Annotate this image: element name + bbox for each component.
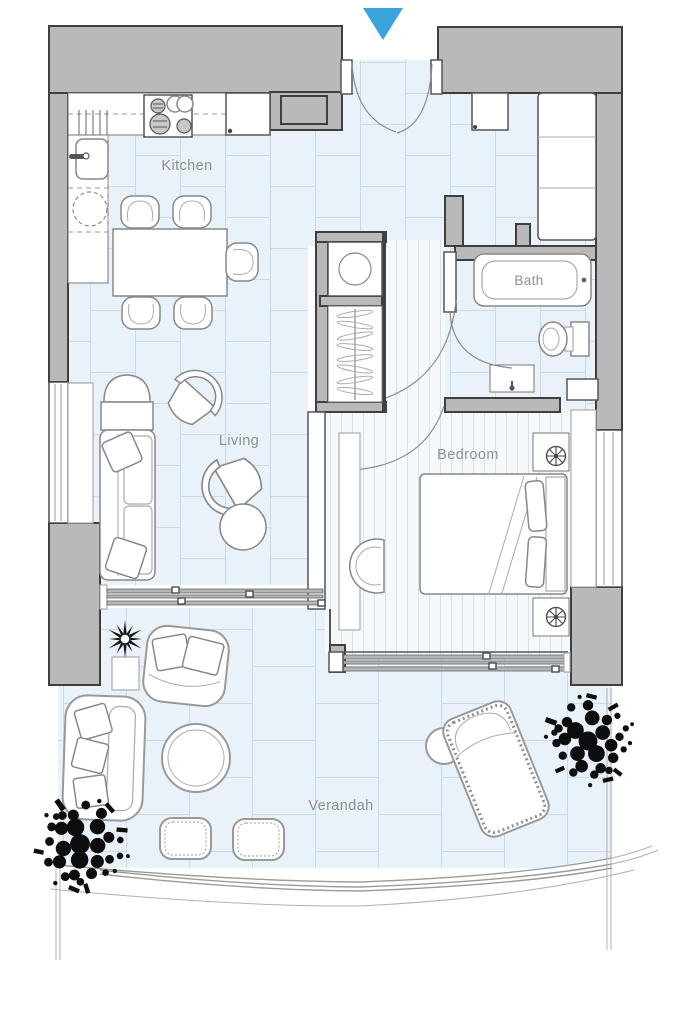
dining-chair <box>174 297 212 329</box>
bath-shelf <box>567 379 598 400</box>
wall-shaft-duct <box>281 96 327 124</box>
fan-icon <box>547 608 566 627</box>
floor-plan-canvas: Kitchen Living Bath Bedroom Verandah <box>0 0 684 1024</box>
closet-hangers <box>328 306 382 402</box>
bedroom-wardrobe <box>571 410 596 587</box>
entry-arrow-down-icon <box>363 8 403 40</box>
verandah-stool <box>160 818 211 859</box>
vanity <box>490 365 534 392</box>
floor-plan: Kitchen Living Bath Bedroom Verandah <box>0 0 684 1024</box>
window-right <box>596 430 622 587</box>
living-label: Living <box>219 433 259 449</box>
hall-floor <box>386 240 445 412</box>
fan-icon <box>547 447 566 466</box>
utility-closet <box>328 242 382 402</box>
sofa <box>100 375 155 580</box>
wall-bath-bottom <box>445 398 560 412</box>
door-jamb-left <box>341 60 352 94</box>
nightstand <box>533 433 569 471</box>
side-pouf <box>220 504 266 550</box>
door-jamb-right <box>431 60 442 94</box>
bath-label: Bath <box>514 273 543 288</box>
pillow <box>525 480 547 531</box>
dining-chair <box>226 243 258 281</box>
wall-living-divider <box>308 412 325 609</box>
kitchen-cabinet <box>226 93 270 135</box>
wall-closet-divider <box>320 296 382 306</box>
sliding-door-living <box>100 585 325 609</box>
sliding-door-bedroom <box>329 652 570 672</box>
entry-cabinet <box>472 93 508 130</box>
wall-closet-top <box>316 232 386 242</box>
dining-chair <box>122 297 160 329</box>
planter <box>112 657 139 690</box>
verandah-table <box>162 724 230 792</box>
dining-chair <box>121 196 159 228</box>
living-console <box>68 383 93 523</box>
bedroom-label: Bedroom <box>437 447 499 463</box>
entry-wardrobe <box>538 93 596 240</box>
pillow <box>525 536 546 587</box>
verandah-stool <box>233 819 284 860</box>
bedroom-console <box>339 433 360 630</box>
verandah-label: Verandah <box>308 798 373 814</box>
dining-chair <box>173 196 211 228</box>
wall-bath-stub <box>445 196 463 246</box>
wall-top-right <box>438 27 622 93</box>
stove <box>144 95 193 137</box>
wall-top-left <box>49 26 342 93</box>
window-left <box>49 382 68 523</box>
wall-closet-bottom <box>316 402 386 412</box>
wall-closet-left <box>316 232 328 412</box>
nightstand <box>533 598 569 636</box>
dining-table <box>113 229 227 296</box>
wall-bath-notch <box>516 224 530 248</box>
wall-right-column <box>571 587 622 685</box>
wall-left-column <box>49 523 100 685</box>
washing-machine <box>328 242 382 296</box>
verandah-armchair <box>141 624 230 708</box>
kitchen-label: Kitchen <box>161 158 212 174</box>
bed <box>420 474 567 594</box>
verandah-sofa <box>62 695 146 822</box>
